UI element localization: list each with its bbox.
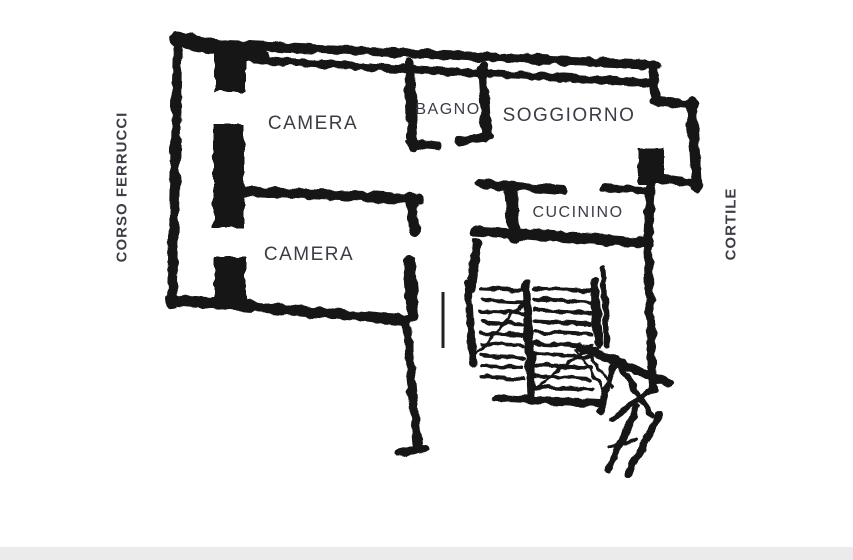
stair-treads-flight-a bbox=[482, 289, 523, 379]
image-bottom-border bbox=[0, 547, 853, 560]
stair-stringer-left bbox=[468, 284, 473, 363]
floor-plan-canvas bbox=[0, 0, 853, 560]
wall-corner-stub bbox=[409, 261, 413, 317]
wall-divider-stub bbox=[411, 197, 414, 230]
wall-camera-divider bbox=[240, 191, 419, 199]
pillar-left-bottom bbox=[214, 257, 246, 304]
wall-soggiorno-right bbox=[648, 176, 651, 248]
room-label-cucinino: CUCININO bbox=[532, 204, 623, 222]
outer-wall-bottom-left bbox=[171, 300, 406, 320]
staircase bbox=[468, 268, 612, 403]
outer-wall-bottom-vertical bbox=[406, 318, 418, 449]
outer-wall-right bbox=[691, 103, 697, 187]
floor-plan: CAMERA BAGNO SOGGIORNO CUCININO CAMERA C… bbox=[0, 0, 853, 560]
street-label-cortile: CORTILE bbox=[723, 188, 740, 261]
pillar-left-middle bbox=[213, 124, 244, 228]
room-label-camera-1: CAMERA bbox=[268, 113, 358, 135]
stair-landing-wall bbox=[603, 268, 607, 345]
stair-stringer-right bbox=[594, 282, 599, 345]
room-label-camera-2: CAMERA bbox=[264, 244, 354, 266]
wall-cucinino-bottom bbox=[474, 231, 650, 243]
wall-stair-left-link bbox=[471, 243, 477, 288]
wall-stair-right bbox=[648, 248, 653, 390]
wall-bagno-left-foot bbox=[411, 143, 437, 146]
room-label-bagno: BAGNO bbox=[415, 101, 480, 119]
pillar-left-top bbox=[215, 45, 246, 92]
wall-cucinino-top-right bbox=[604, 188, 648, 191]
outer-wall-left bbox=[172, 40, 178, 303]
stair-treads-flight-b bbox=[535, 288, 591, 390]
street-label-corso-ferrucci: CORSO FERRUCCI bbox=[114, 112, 131, 263]
stair-stringer-middle bbox=[526, 284, 532, 396]
wall-bagno-right bbox=[482, 66, 487, 138]
room-label-soggiorno: SOGGIORNO bbox=[503, 105, 636, 127]
stair-bottom-edge bbox=[496, 398, 600, 403]
wall-bagno-right-foot bbox=[459, 137, 489, 141]
outer-wall-bottom-foot bbox=[398, 448, 426, 453]
wall-bagno-left bbox=[409, 63, 413, 147]
wall-cucinino-top-left bbox=[479, 184, 563, 190]
